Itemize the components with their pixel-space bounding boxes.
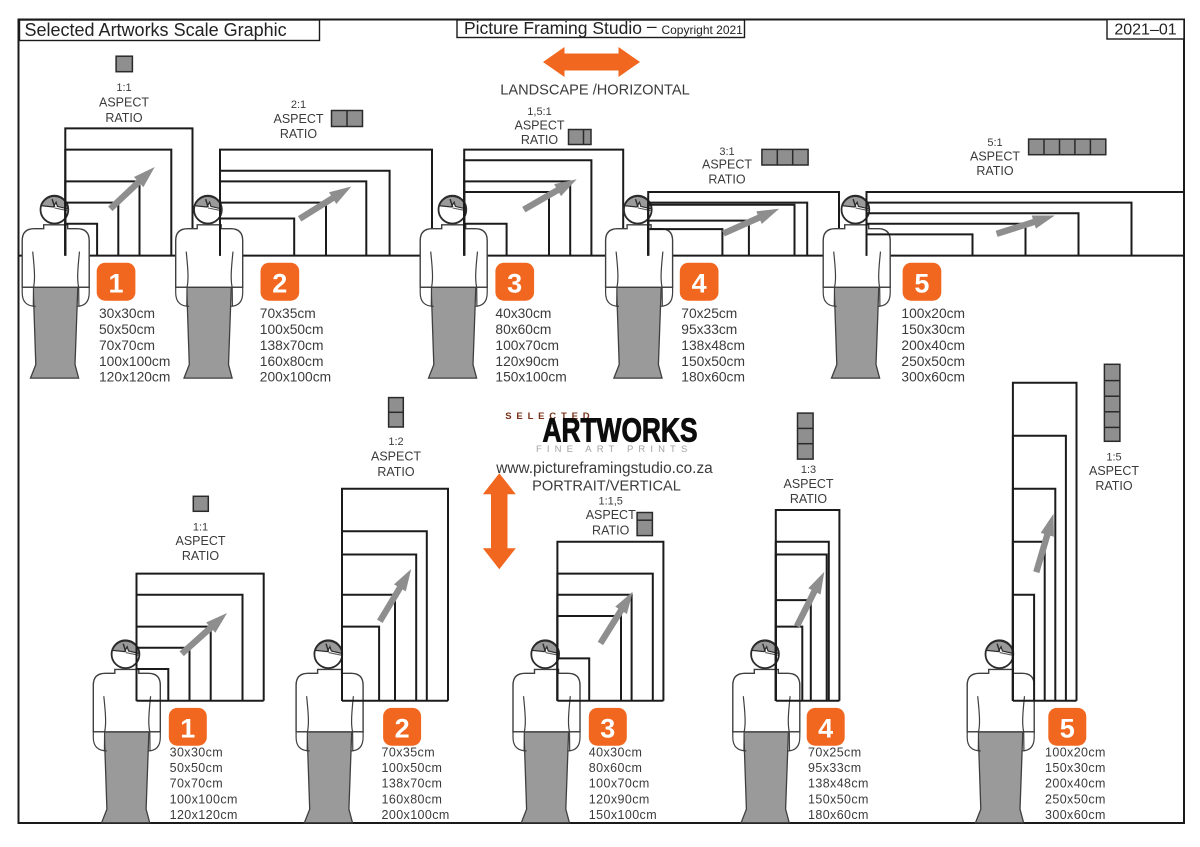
svg-text:2021–01: 2021–01 [1114,22,1176,39]
svg-text:RATIO: RATIO [1095,479,1133,493]
svg-text:150x30cm: 150x30cm [901,322,965,337]
svg-text:30x30cm: 30x30cm [99,306,155,321]
svg-text:www.pictureframingstudio.co.za: www.pictureframingstudio.co.za [495,460,713,477]
svg-text:70x25cm: 70x25cm [808,745,862,759]
svg-text:ASPECT: ASPECT [371,450,421,464]
svg-text:RATIO: RATIO [182,549,220,563]
svg-text:150x100cm: 150x100cm [495,370,566,385]
svg-text:50x50cm: 50x50cm [170,761,224,775]
svg-text:150x50cm: 150x50cm [808,792,869,806]
svg-text:160x80cm: 160x80cm [382,792,443,806]
svg-text:1:1: 1:1 [116,82,131,94]
svg-text:ASPECT: ASPECT [514,119,564,133]
svg-text:RATIO: RATIO [592,524,630,538]
svg-text:120x120cm: 120x120cm [170,808,238,822]
svg-text:250x50cm: 250x50cm [901,354,965,369]
svg-text:ASPECT: ASPECT [586,508,636,522]
svg-text:100x20cm: 100x20cm [901,306,965,321]
svg-text:ASPECT: ASPECT [99,96,149,110]
svg-text:200x40cm: 200x40cm [901,338,965,353]
svg-text:1:1,5: 1:1,5 [598,496,622,508]
svg-text:RATIO: RATIO [976,164,1014,178]
svg-text:70x35cm: 70x35cm [382,745,436,759]
svg-text:138x70cm: 138x70cm [260,338,324,353]
svg-text:80x60cm: 80x60cm [495,322,551,337]
svg-text:100x50cm: 100x50cm [382,761,443,775]
svg-text:200x40cm: 200x40cm [1045,777,1106,791]
svg-text:1:5: 1:5 [1106,452,1121,464]
svg-text:5: 5 [1060,714,1075,744]
svg-text:200x100cm: 200x100cm [382,808,450,822]
svg-text:160x80cm: 160x80cm [260,354,324,369]
svg-text:1:1: 1:1 [193,522,208,534]
svg-text:70x35cm: 70x35cm [260,306,316,321]
svg-text:120x120cm: 120x120cm [99,370,170,385]
svg-text:3:1: 3:1 [719,146,734,158]
svg-text:70x70cm: 70x70cm [170,777,224,791]
svg-text:FINE ART PRINTS: FINE ART PRINTS [536,444,692,455]
svg-text:150x100cm: 150x100cm [589,808,657,822]
svg-text:1: 1 [108,269,123,299]
svg-text:LANDSCAPE /HORIZONTAL: LANDSCAPE /HORIZONTAL [500,83,689,99]
svg-text:70x70cm: 70x70cm [99,338,155,353]
svg-text:ASPECT: ASPECT [783,477,833,491]
svg-text:4: 4 [818,714,833,744]
svg-text:100x50cm: 100x50cm [260,322,324,337]
svg-text:70x25cm: 70x25cm [681,306,737,321]
svg-text:30x30cm: 30x30cm [170,745,224,759]
svg-text:2: 2 [272,269,287,299]
svg-text:2:1: 2:1 [291,99,306,111]
svg-text:5:1: 5:1 [987,137,1002,149]
svg-text:RATIO: RATIO [521,133,559,147]
svg-text:100x70cm: 100x70cm [495,338,559,353]
svg-text:180x60cm: 180x60cm [681,370,745,385]
svg-text:1: 1 [180,714,195,744]
svg-text:138x70cm: 138x70cm [382,777,443,791]
svg-text:RATIO: RATIO [377,465,415,479]
svg-text:250x50cm: 250x50cm [1045,792,1106,806]
svg-text:180x60cm: 180x60cm [808,808,869,822]
svg-text:300x60cm: 300x60cm [1045,808,1106,822]
svg-text:138x48cm: 138x48cm [681,338,745,353]
svg-text:100x100cm: 100x100cm [99,354,170,369]
svg-text:95x33cm: 95x33cm [808,761,862,775]
svg-text:4: 4 [692,269,707,299]
svg-text:50x50cm: 50x50cm [99,322,155,337]
svg-text:ASPECT: ASPECT [702,158,752,172]
svg-text:120x90cm: 120x90cm [589,792,650,806]
svg-text:40x30cm: 40x30cm [589,745,643,759]
svg-text:ASPECT: ASPECT [175,534,225,548]
svg-text:PORTRAIT/VERTICAL: PORTRAIT/VERTICAL [532,479,681,495]
svg-text:100x70cm: 100x70cm [589,777,650,791]
svg-text:120x90cm: 120x90cm [495,354,559,369]
svg-text:3: 3 [600,714,615,744]
svg-text:5: 5 [914,269,929,299]
svg-text:ASPECT: ASPECT [970,150,1020,164]
svg-text:80x60cm: 80x60cm [589,761,643,775]
svg-text:RATIO: RATIO [790,492,828,506]
svg-text:1:2: 1:2 [388,436,403,448]
svg-text:40x30cm: 40x30cm [495,306,551,321]
svg-text:2: 2 [395,714,410,744]
svg-text:95x33cm: 95x33cm [681,322,737,337]
svg-text:ASPECT: ASPECT [1089,464,1139,478]
svg-text:3: 3 [507,269,522,299]
svg-text:RATIO: RATIO [280,127,318,141]
svg-text:200x100cm: 200x100cm [260,370,331,385]
svg-text:138x48cm: 138x48cm [808,777,869,791]
svg-text:100x20cm: 100x20cm [1045,745,1106,759]
svg-text:150x30cm: 150x30cm [1045,761,1106,775]
svg-text:ASPECT: ASPECT [273,112,323,126]
svg-text:300x60cm: 300x60cm [901,370,965,385]
svg-text:1:3: 1:3 [801,464,816,476]
svg-text:100x100cm: 100x100cm [170,792,238,806]
svg-text:ARTWORKS: ARTWORKS [543,412,698,449]
svg-text:RATIO: RATIO [708,173,746,187]
svg-text:Selected Artworks Scale Graphi: Selected Artworks Scale Graphic [25,20,287,40]
svg-text:150x50cm: 150x50cm [681,354,745,369]
svg-text:RATIO: RATIO [105,111,143,125]
svg-text:1,5:1: 1,5:1 [527,106,551,118]
